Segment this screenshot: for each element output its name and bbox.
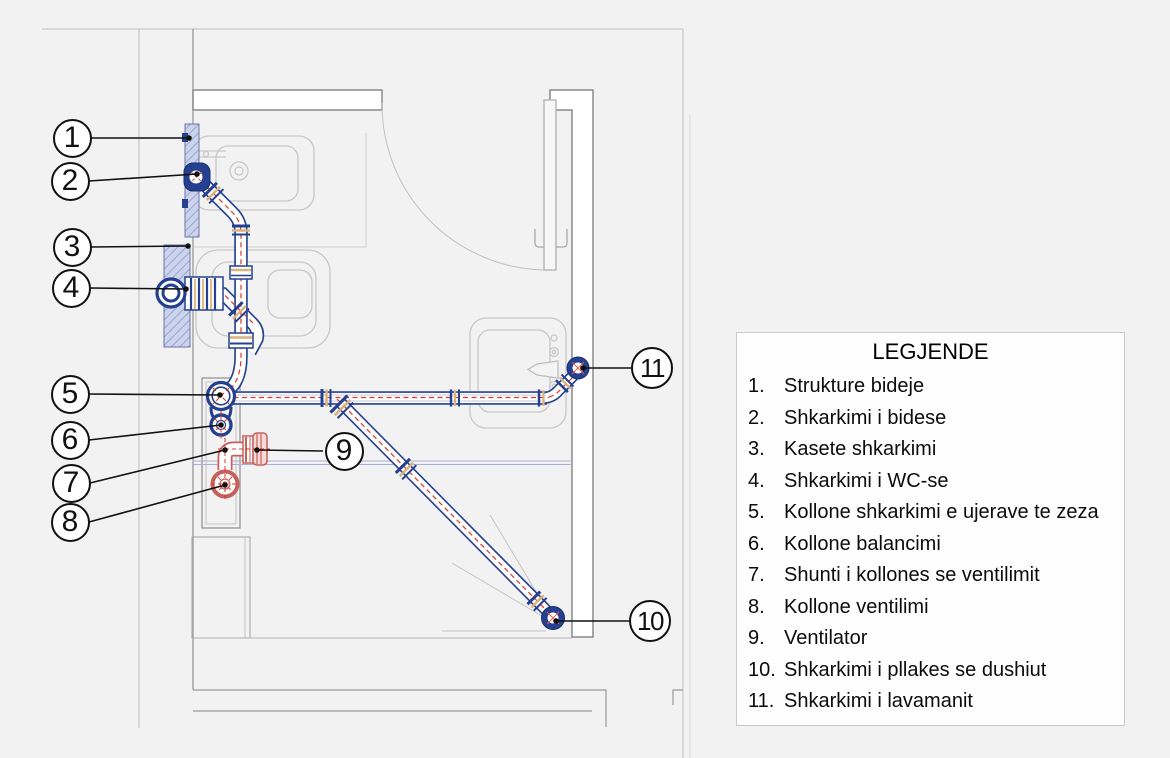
callout-1: 1 (53, 119, 92, 158)
pipe-shaft (192, 133, 572, 638)
legend-item: 1.Strukture bideje (748, 375, 1120, 401)
legend-item-number: 4. (748, 470, 784, 493)
callout-9: 9 (325, 432, 364, 471)
legend-item: 7.Shunti i kollones se ventilimit (748, 564, 1120, 590)
legend-item-number: 11. (748, 690, 784, 713)
legend-item-label: Kollone balancimi (784, 533, 941, 555)
legend-item-label: Shunti i kollones se ventilimit (784, 564, 1040, 586)
bidet-drain-fitting (184, 163, 210, 191)
legend-item: 6.Kollone balancimi (748, 533, 1120, 559)
legend-item-label: Ventilator (784, 627, 867, 649)
legend-item-number: 6. (748, 533, 784, 556)
callout-2: 2 (51, 162, 90, 201)
legend-item-label: Strukture bideje (784, 375, 924, 397)
faucet-icon (528, 361, 558, 378)
legend-item-label: Shkarkimi i WC-se (784, 470, 948, 492)
shower-drain-fitting (542, 607, 565, 630)
wc-drain-fitting (157, 279, 185, 307)
sink-fixture (470, 318, 566, 428)
legend-title: LEGJENDE (737, 339, 1124, 365)
legend-item: 10.Shkarkimi i pllakes se dushiut (748, 659, 1120, 685)
legend-item-number: 10. (748, 659, 784, 682)
legend-item: 5.Kollone shkarkimi e ujerave te zeza (748, 501, 1120, 527)
legend-item: 8.Kollone ventilimi (748, 596, 1120, 622)
callout-11: 11 (631, 347, 673, 389)
legend-item-label: Shkarkimi i lavamanit (784, 690, 973, 712)
callout-7: 7 (52, 464, 91, 503)
legend-item-number: 1. (748, 375, 784, 398)
legend-item: 4.Shkarkimi i WC-se (748, 470, 1120, 496)
legend-item-label: Kasete shkarkimi (784, 438, 936, 460)
legend-item: 3.Kasete shkarkimi (748, 438, 1120, 464)
legend-item-label: Shkarkimi i bidese (784, 407, 946, 429)
callout-8: 8 (51, 503, 90, 542)
legend-item-number: 8. (748, 596, 784, 619)
callout-10: 10 (629, 600, 671, 642)
walls (193, 29, 683, 727)
legend-item: 2.Shkarkimi i bidese (748, 407, 1120, 433)
legend-box: LEGJENDE 1.Strukture bideje 2.Shkarkimi … (736, 332, 1125, 726)
plumbing-diagram-page: 1 2 3 4 5 6 7 8 9 10 11 LEGJENDE 1.Struk… (0, 0, 1170, 758)
legend-item-label: Kollone shkarkimi e ujerave te zeza (784, 501, 1099, 523)
legend-item-number: 2. (748, 407, 784, 430)
callout-4: 4 (52, 269, 91, 308)
legend-item-number: 7. (748, 564, 784, 587)
legend-item: 9.Ventilator (748, 627, 1120, 653)
door-leaf (544, 100, 556, 270)
callout-5: 5 (51, 375, 90, 414)
legend-item-label: Kollone ventilimi (784, 596, 929, 618)
callout-3: 3 (53, 228, 92, 267)
callout-6: 6 (51, 421, 90, 460)
legend-item-label: Shkarkimi i pllakes se dushiut (784, 659, 1046, 681)
legend-item-number: 3. (748, 438, 784, 461)
legend-item: 11.Shkarkimi i lavamanit (748, 690, 1120, 716)
door (382, 100, 567, 270)
legend-item-number: 9. (748, 627, 784, 650)
legend-item-number: 5. (748, 501, 784, 524)
